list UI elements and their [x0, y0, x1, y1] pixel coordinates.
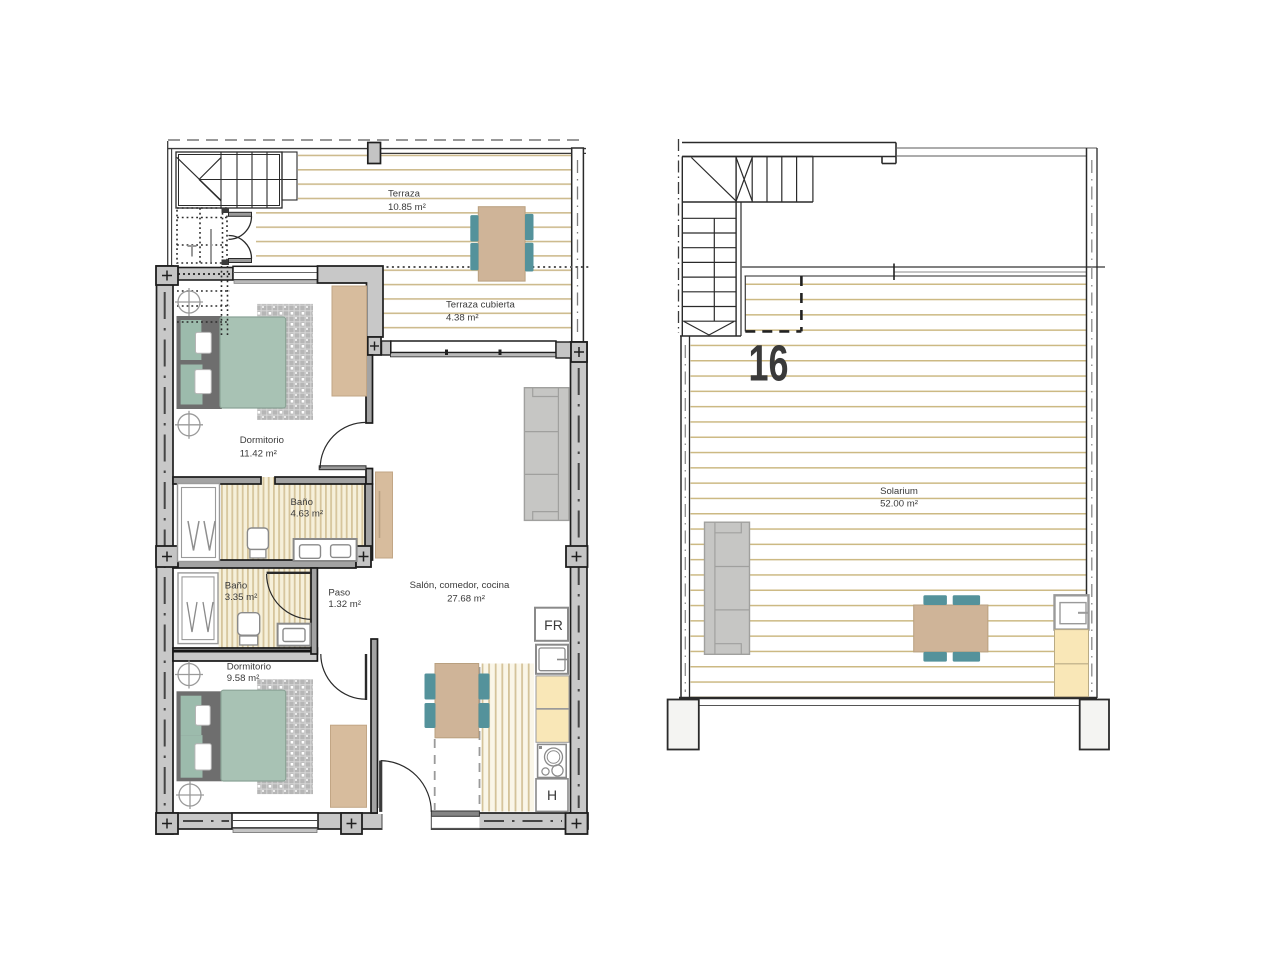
svg-text:9.58 m²: 9.58 m²	[227, 673, 260, 684]
svg-text:Dormitorio: Dormitorio	[227, 662, 271, 673]
svg-text:Terraza cubierta: Terraza cubierta	[446, 300, 515, 311]
svg-text:Dormitorio: Dormitorio	[240, 435, 284, 446]
svg-text:1.32 m²: 1.32 m²	[328, 599, 361, 610]
svg-text:10.85 m²: 10.85 m²	[388, 202, 427, 213]
svg-text:Paso: Paso	[328, 588, 350, 599]
svg-text:11.42 m²: 11.42 m²	[240, 448, 278, 459]
svg-text:Baño: Baño	[291, 497, 313, 508]
svg-text:Baño: Baño	[225, 581, 247, 592]
svg-text:Solarium: Solarium	[880, 486, 918, 497]
svg-text:H: H	[547, 787, 557, 803]
svg-text:Salón, comedor, cocina: Salón, comedor, cocina	[410, 580, 510, 591]
svg-text:3.35 m²: 3.35 m²	[225, 592, 258, 603]
svg-text:Terraza: Terraza	[388, 189, 421, 200]
svg-text:52.00 m²: 52.00 m²	[880, 499, 919, 510]
svg-text:16: 16	[749, 335, 789, 392]
svg-text:27.68 m²: 27.68 m²	[447, 594, 486, 605]
svg-text:FR: FR	[544, 617, 563, 633]
svg-text:4.38 m²: 4.38 m²	[446, 313, 479, 324]
svg-text:4.63 m²: 4.63 m²	[291, 509, 324, 520]
